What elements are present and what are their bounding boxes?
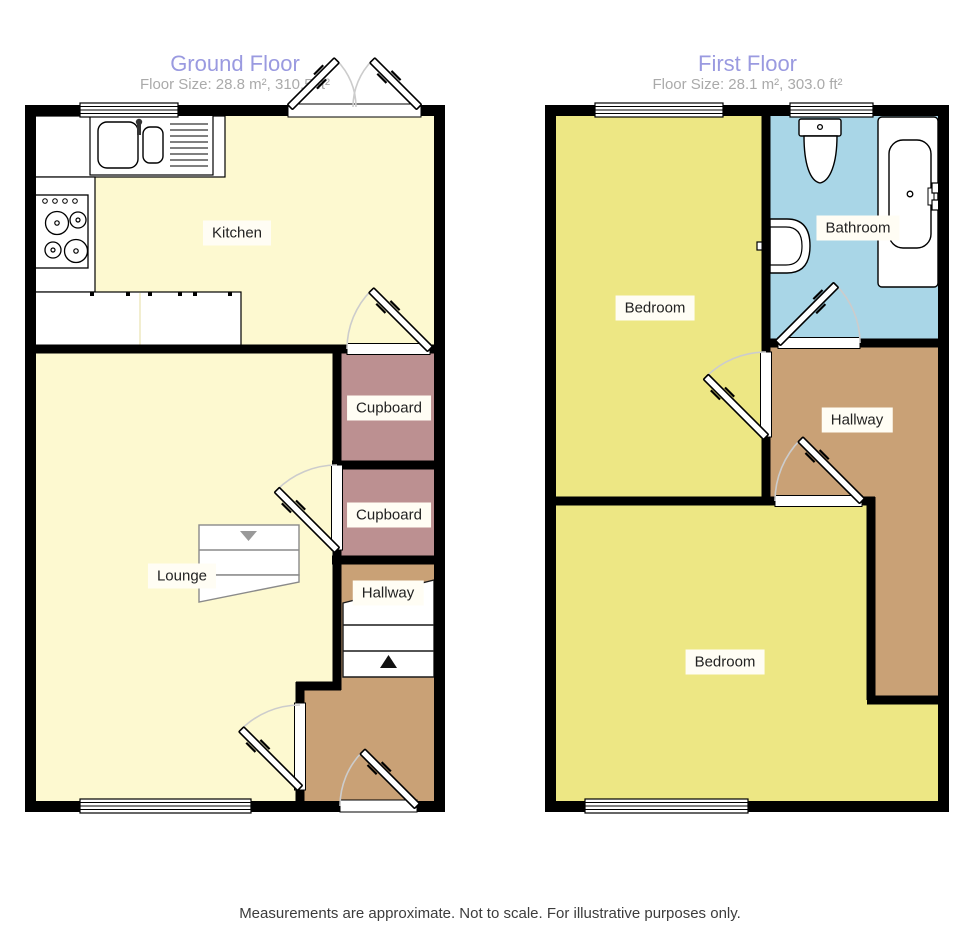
kitchen-counter-bottom xyxy=(31,292,241,347)
room-label-cupboard-bottom: Cupboard xyxy=(347,503,431,528)
bathtub xyxy=(878,117,946,287)
kitchen-hob xyxy=(35,195,88,268)
first-floor-plan xyxy=(551,103,947,813)
room-label-bathroom: Bathroom xyxy=(816,216,899,241)
disclaimer-text: Measurements are approximate. Not to sca… xyxy=(0,905,980,922)
floorplan-canvas xyxy=(0,0,980,952)
hallway-first-strip xyxy=(871,501,938,700)
room-label-lounge: Lounge xyxy=(148,564,216,589)
kitchen-window xyxy=(80,103,178,117)
ground-floor-plan xyxy=(25,56,445,813)
patio-door-right xyxy=(368,56,423,111)
room-label-kitchen: Kitchen xyxy=(203,221,271,246)
room-label-hallway-first: Hallway xyxy=(822,408,893,433)
bathroom-window xyxy=(790,103,873,117)
bedroom-top-window xyxy=(595,103,723,117)
room-label-bedroom-top: Bedroom xyxy=(616,296,695,321)
room-label-hallway-ground: Hallway xyxy=(353,581,424,606)
lounge-window xyxy=(80,799,251,813)
patio-door-left xyxy=(286,56,341,111)
floorplan-page: Ground Floor Floor Size: 28.8 m², 310.5 … xyxy=(0,0,980,952)
kitchen-sink xyxy=(90,114,213,175)
room-label-cupboard-top: Cupboard xyxy=(347,396,431,421)
bedroom-bottom-window xyxy=(585,799,748,813)
room-label-bedroom-bottom: Bedroom xyxy=(686,650,765,675)
